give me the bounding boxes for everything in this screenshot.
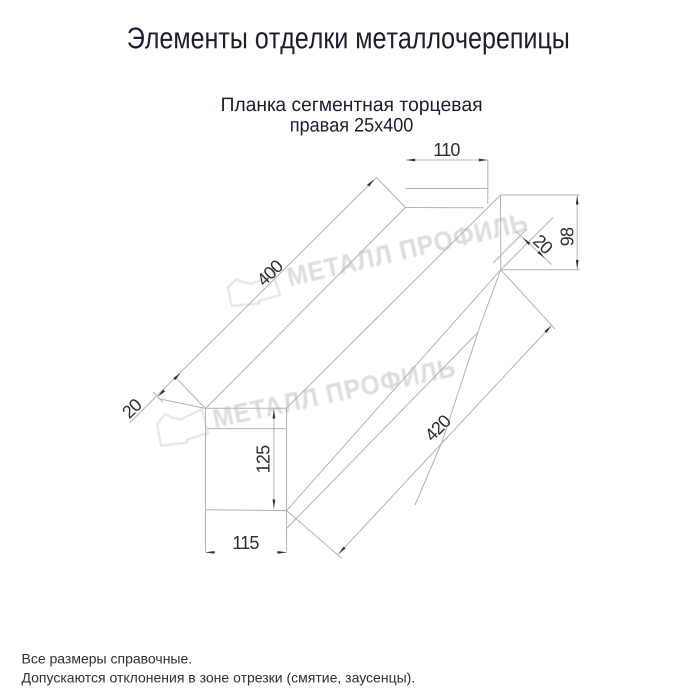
svg-text:98: 98	[558, 227, 578, 246]
svg-text:115: 115	[232, 533, 259, 553]
svg-text:110: 110	[433, 140, 460, 160]
svg-text:125: 125	[254, 445, 274, 473]
svg-text:Все размеры справочные.: Все размеры справочные.	[22, 651, 193, 667]
svg-text:Допускаются отклонения в зоне: Допускаются отклонения в зоне отрезки (с…	[22, 670, 416, 686]
